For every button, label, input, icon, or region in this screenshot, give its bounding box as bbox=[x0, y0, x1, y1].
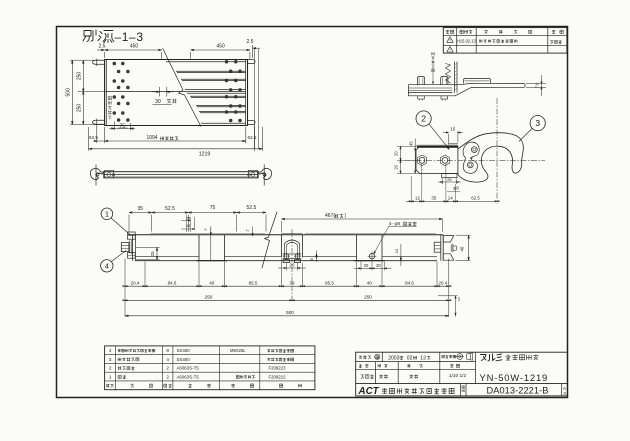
svg-text:15: 15 bbox=[450, 127, 456, 132]
svg-text:φ8: φ8 bbox=[395, 221, 401, 226]
svg-text:YN-50W-1219: YN-50W-1219 bbox=[480, 372, 549, 383]
svg-text:2: 2 bbox=[166, 366, 169, 371]
svg-text:F209222: F209222 bbox=[269, 374, 287, 379]
svg-text:1/10 1/2: 1/10 1/2 bbox=[449, 373, 467, 379]
svg-text:25: 25 bbox=[447, 177, 451, 182]
svg-text:20: 20 bbox=[364, 263, 369, 268]
svg-text:40: 40 bbox=[209, 280, 215, 285]
svg-text:3: 3 bbox=[535, 118, 540, 128]
svg-text:20: 20 bbox=[376, 263, 381, 268]
svg-text:7.6: 7.6 bbox=[535, 82, 540, 88]
svg-text:M8X25L: M8X25L bbox=[230, 348, 246, 353]
svg-text:20: 20 bbox=[290, 262, 295, 267]
svg-text:3: 3 bbox=[563, 391, 566, 397]
svg-text:4: 4 bbox=[105, 261, 109, 270]
svg-text:A6063S-T5: A6063S-T5 bbox=[177, 374, 200, 379]
svg-text:–1–3: –1–3 bbox=[115, 30, 144, 44]
svg-text:2.5: 2.5 bbox=[99, 43, 106, 49]
svg-text:35: 35 bbox=[431, 196, 436, 201]
svg-text:40: 40 bbox=[459, 246, 464, 252]
svg-text:84.6: 84.6 bbox=[405, 280, 414, 285]
svg-text:250: 250 bbox=[76, 72, 82, 81]
svg-text:25: 25 bbox=[150, 251, 155, 257]
svg-text:ACT: ACT bbox=[358, 386, 380, 397]
svg-text:35: 35 bbox=[138, 206, 144, 212]
svg-text:3: 3 bbox=[109, 357, 112, 362]
svg-text:62.5: 62.5 bbox=[89, 135, 98, 140]
svg-text:φ8: φ8 bbox=[453, 186, 459, 191]
svg-text:20.4: 20.4 bbox=[439, 280, 448, 285]
svg-text:1: 1 bbox=[109, 374, 112, 379]
svg-text:SS400: SS400 bbox=[177, 357, 191, 362]
svg-text:1219: 1219 bbox=[199, 151, 211, 157]
svg-text:8: 8 bbox=[166, 348, 169, 353]
svg-text:1: 1 bbox=[105, 209, 109, 218]
svg-text:2: 2 bbox=[166, 374, 169, 379]
svg-text:250: 250 bbox=[76, 104, 82, 113]
svg-text:85.5: 85.5 bbox=[325, 280, 334, 285]
svg-text:2: 2 bbox=[421, 114, 426, 124]
svg-text:40: 40 bbox=[367, 280, 373, 285]
svg-text:2: 2 bbox=[109, 366, 112, 371]
svg-text:4-: 4- bbox=[389, 221, 394, 226]
svg-text:1094: 1094 bbox=[146, 135, 157, 141]
svg-text:12: 12 bbox=[415, 196, 420, 201]
svg-text:45: 45 bbox=[409, 141, 414, 146]
svg-text:62.5: 62.5 bbox=[471, 196, 480, 201]
svg-text:450: 450 bbox=[130, 43, 139, 49]
svg-text:F209223: F209223 bbox=[269, 366, 287, 371]
svg-text:20.4: 20.4 bbox=[131, 280, 140, 285]
svg-text:52.5: 52.5 bbox=[165, 206, 175, 212]
svg-text:02: 02 bbox=[407, 355, 413, 361]
svg-text:467(: 467( bbox=[325, 213, 335, 219]
svg-text:DA013-2221-B: DA013-2221-B bbox=[487, 385, 549, 395]
svg-text:500: 500 bbox=[286, 310, 294, 315]
svg-text:20: 20 bbox=[394, 151, 399, 156]
svg-text:62.5: 62.5 bbox=[248, 135, 257, 140]
svg-text:H15.02.13: H15.02.13 bbox=[457, 38, 477, 43]
svg-text:85.5: 85.5 bbox=[249, 280, 258, 285]
svg-text:25: 25 bbox=[186, 216, 190, 220]
svg-text:20: 20 bbox=[394, 164, 399, 169]
svg-text:A6063S-T5: A6063S-T5 bbox=[177, 366, 200, 371]
svg-text:SS400: SS400 bbox=[177, 348, 191, 353]
svg-text:2.5: 2.5 bbox=[247, 39, 254, 45]
svg-text:75: 75 bbox=[210, 205, 216, 211]
svg-text:10: 10 bbox=[394, 248, 399, 253]
svg-text:250: 250 bbox=[364, 295, 372, 300]
svg-text:14: 14 bbox=[448, 196, 453, 201]
svg-text:30: 30 bbox=[155, 99, 161, 105]
svg-text:75: 75 bbox=[119, 123, 125, 129]
svg-text:13: 13 bbox=[420, 355, 426, 361]
svg-text:250: 250 bbox=[205, 295, 213, 300]
svg-text:2003: 2003 bbox=[388, 355, 399, 361]
svg-text:52.5: 52.5 bbox=[247, 205, 257, 211]
svg-text:500: 500 bbox=[65, 88, 71, 97]
svg-text:39: 39 bbox=[289, 280, 295, 285]
svg-text:4: 4 bbox=[166, 357, 169, 362]
svg-text:4: 4 bbox=[109, 348, 112, 353]
svg-text:84.6: 84.6 bbox=[168, 280, 177, 285]
svg-text:13: 13 bbox=[186, 224, 190, 228]
svg-text:450: 450 bbox=[216, 43, 225, 49]
